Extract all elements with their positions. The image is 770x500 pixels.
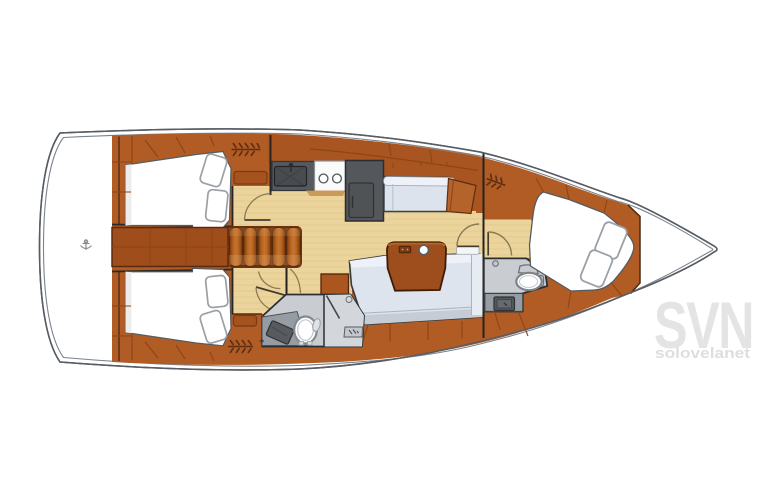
svg-text:solovelanet: solovelanet [655, 346, 750, 362]
